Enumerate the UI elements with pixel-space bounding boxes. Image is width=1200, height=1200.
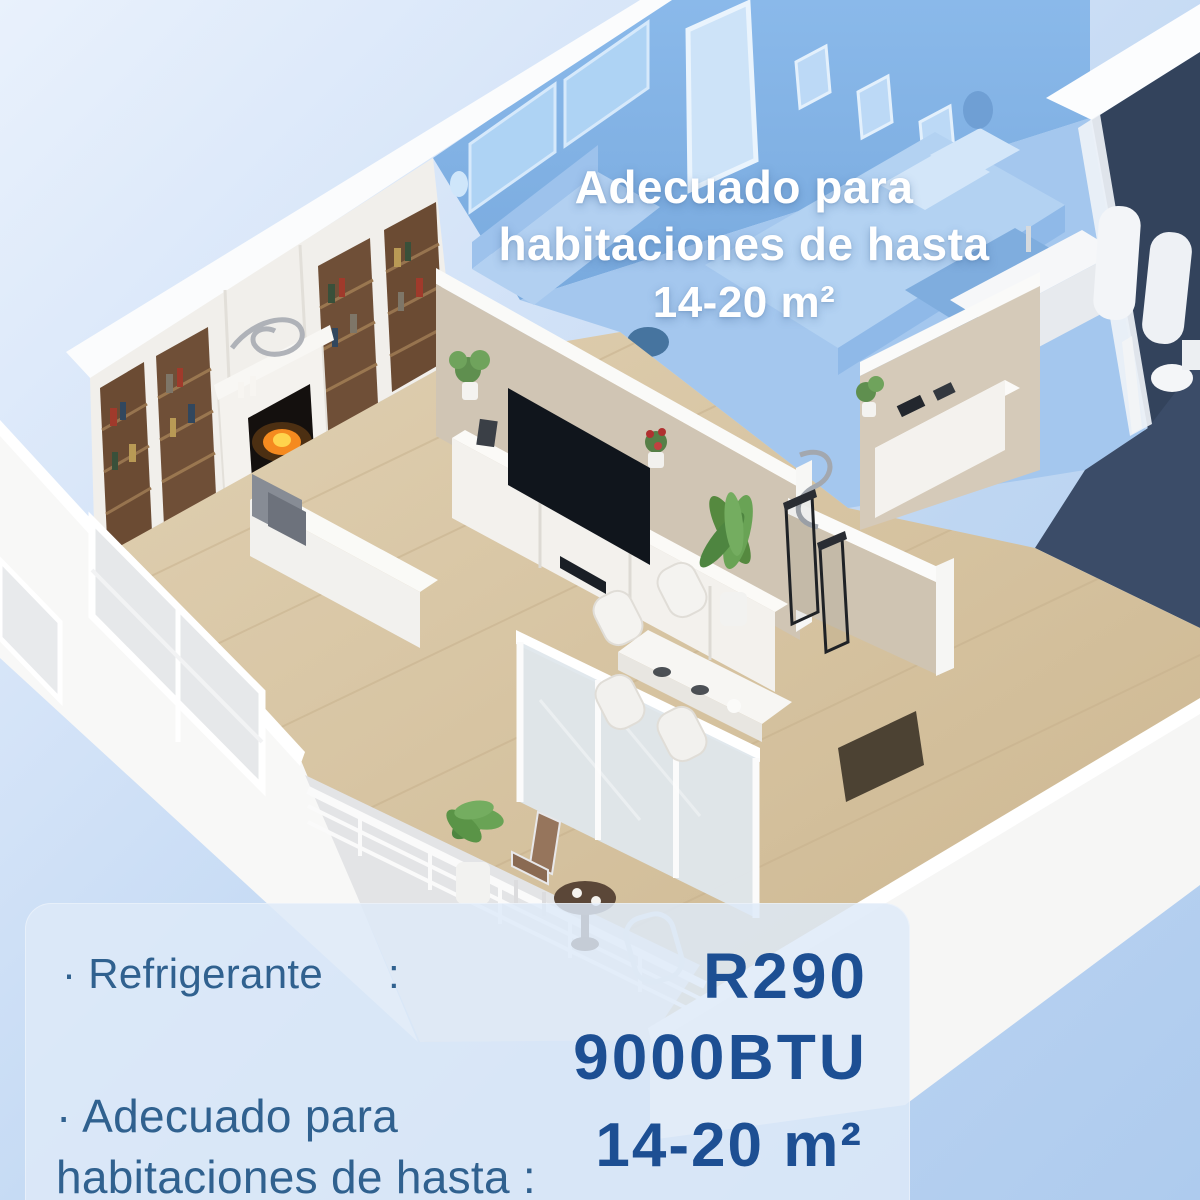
candle	[238, 382, 244, 398]
refrigerant-type: R290	[573, 936, 868, 1017]
bookshelf	[384, 202, 444, 392]
overlay-line-2: habitaciones de hasta	[498, 217, 989, 271]
toilet-tank	[1182, 340, 1200, 370]
overlay-line-1: Adecuado para	[575, 160, 914, 214]
table-decor	[691, 685, 709, 695]
btu-capacity: 9000BTU	[573, 1017, 868, 1098]
overlay-line-3: 14-20 m²	[653, 278, 836, 328]
refrigerant-value: R290 9000BTU	[573, 936, 868, 1099]
bookshelf	[100, 362, 152, 560]
refrigerant-label: · Refrigerante	[62, 950, 323, 998]
room-size-label-line-1: · Adecuado para	[56, 1086, 536, 1147]
partition-end-post	[936, 558, 954, 676]
wall-sconce	[450, 171, 468, 197]
room-size-label-line-2: habitaciones de hasta :	[56, 1147, 536, 1200]
table-decor	[653, 667, 671, 677]
room-size-value: 14-20 m²	[595, 1110, 863, 1181]
room-size-label: · Adecuado para habitaciones de hasta :	[56, 1086, 536, 1200]
refrigerant-colon: :	[388, 950, 400, 998]
bathrobe	[1092, 205, 1142, 322]
flower-plant	[645, 428, 667, 468]
bookshelf	[156, 327, 216, 526]
bedside-lamp	[963, 91, 993, 129]
photo-frame	[476, 419, 497, 447]
faucet	[1026, 226, 1031, 252]
plate	[727, 699, 741, 713]
product-infographic: Adecuado para habitaciones de hasta 14-2…	[0, 0, 1200, 1200]
candle	[250, 376, 256, 396]
